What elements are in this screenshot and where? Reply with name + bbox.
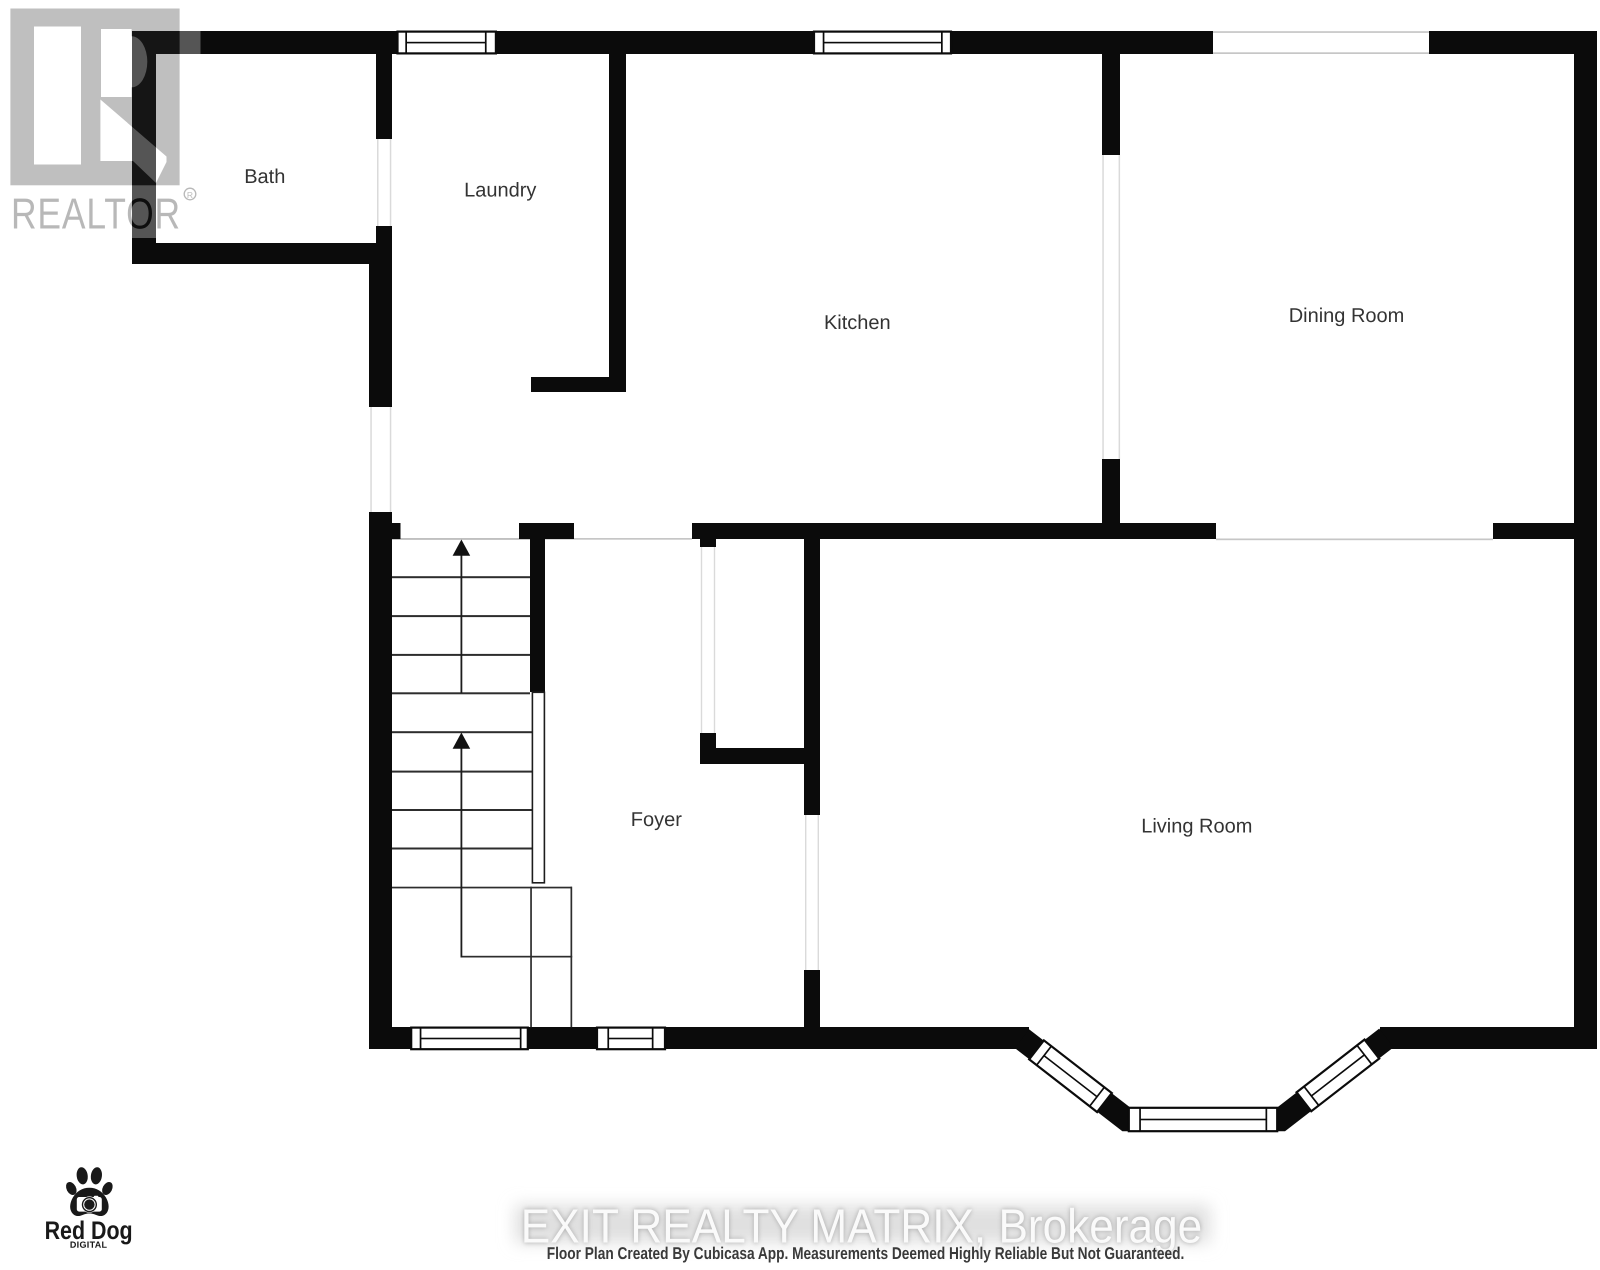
svg-text:REALTOR: REALTOR xyxy=(11,190,181,238)
svg-text:Bath: Bath xyxy=(244,166,285,188)
svg-text:Foyer: Foyer xyxy=(631,809,682,831)
svg-text:DIGITAL: DIGITAL xyxy=(70,1240,108,1250)
svg-text:Dining Room: Dining Room xyxy=(1289,305,1405,327)
svg-text:Floor Plan Created By Cubicasa: Floor Plan Created By Cubicasa App. Meas… xyxy=(547,1244,1185,1263)
svg-text:Kitchen: Kitchen xyxy=(824,312,891,334)
svg-text:R: R xyxy=(187,190,193,200)
svg-text:Laundry: Laundry xyxy=(464,180,536,202)
svg-text:Living Room: Living Room xyxy=(1141,816,1252,838)
